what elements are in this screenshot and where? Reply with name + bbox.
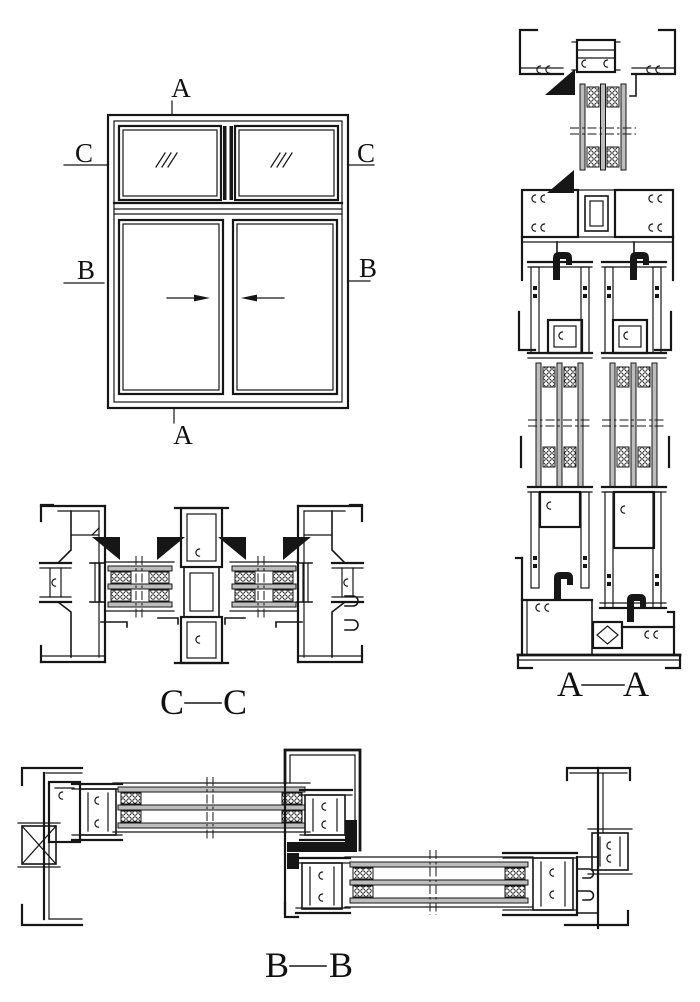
section-bb-label: B B [265, 945, 353, 985]
receptor-hook [577, 891, 594, 900]
section-bb-view: B B [18, 750, 632, 985]
slide-direction-arrow-left [241, 295, 284, 302]
anti-lift-hook [554, 572, 573, 600]
window-outer-frame [108, 115, 348, 408]
label-left: B [265, 945, 289, 985]
jamb-chamber [588, 829, 632, 874]
fixed-lite-right [235, 126, 338, 200]
elevation-view: A A C C B B [64, 73, 377, 450]
sash-section-right [600, 262, 666, 622]
transom [114, 203, 342, 214]
jamb-left [18, 768, 82, 925]
wall-anchor-stubs [519, 312, 671, 467]
section-cc-view: C C [40, 505, 363, 722]
marker-label: B [77, 255, 95, 285]
sliding-sash-left [119, 220, 223, 394]
window-sections-drawing: A A C C B B [0, 0, 700, 1002]
track-cover-profile [18, 823, 60, 867]
interlock-hooks [287, 842, 357, 852]
marker-label: C [357, 138, 375, 168]
sash-igu-left [113, 777, 310, 840]
track-hook [553, 252, 572, 280]
section-marker-b-left: B [64, 255, 104, 285]
glass-hatch-icon [156, 153, 177, 167]
section-marker-c-right: C [348, 138, 375, 168]
head-frame-profile [520, 30, 675, 96]
marker-label: B [359, 253, 377, 283]
section-marker-a-top: A [171, 73, 191, 115]
track-hook [630, 252, 649, 280]
label-left: C [160, 682, 184, 722]
retainer-hook [345, 620, 358, 630]
sill-foot [666, 655, 680, 668]
marker-label: C [75, 138, 93, 168]
section-marker-c-left: C [64, 138, 107, 168]
sliding-sash-right [233, 220, 337, 394]
label-right: A [623, 664, 649, 704]
jamb-right [565, 768, 632, 928]
sash-section-left [528, 262, 592, 600]
transom-profile [522, 170, 673, 280]
label-left: A [557, 664, 583, 704]
glass-hatch-icon [271, 153, 292, 167]
section-cc-label: C C [160, 682, 247, 722]
fixed-igu-right [230, 556, 298, 618]
meeting-stile-interlock [285, 750, 360, 917]
sash-igu [528, 363, 592, 487]
slide-direction-arrow-right [167, 295, 210, 302]
marker-label: A [173, 420, 193, 450]
label-right: C [223, 682, 247, 722]
section-aa-label: A A [557, 664, 649, 704]
drain-chamber [597, 626, 618, 644]
fixed-igu [570, 84, 636, 170]
glazing-bead [630, 74, 636, 96]
sash-igu [602, 363, 666, 487]
side-bead-profile [40, 563, 71, 602]
label-right: B [329, 945, 353, 985]
sill-foot [518, 655, 532, 668]
sash-stile-left-of-right-sash [296, 858, 350, 913]
sash-igu-right [345, 850, 533, 915]
section-aa-view: A A [516, 30, 680, 704]
drawing-sheet: A A C C B B [0, 0, 700, 1002]
section-marker-a-bottom: A [173, 408, 193, 450]
window-inner-frame [114, 121, 342, 402]
fixed-igu-left [106, 556, 174, 618]
center-mullion [223, 126, 233, 200]
marker-label: A [171, 73, 191, 103]
section-marker-b-right: B [348, 253, 377, 283]
